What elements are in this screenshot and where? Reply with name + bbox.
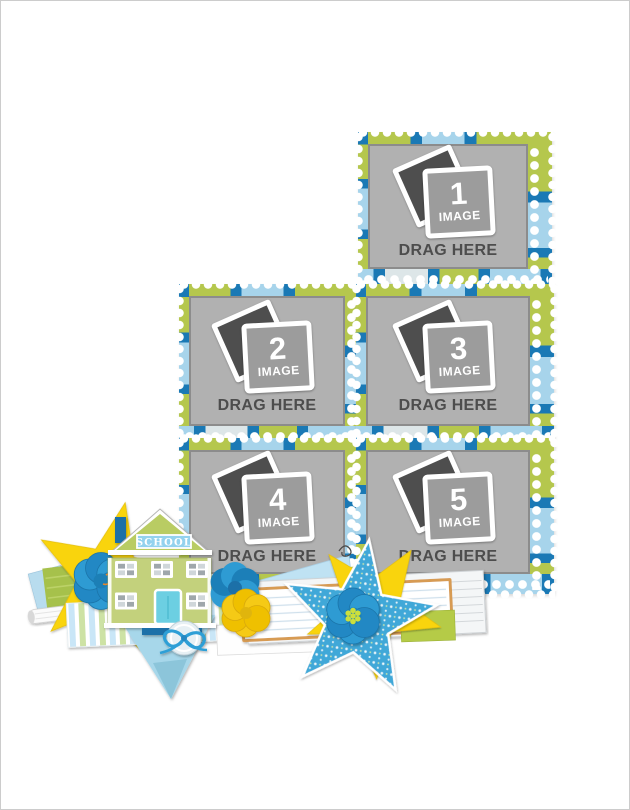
window-icon bbox=[186, 561, 208, 578]
photo-stack-icon: 1 IMAGE bbox=[400, 153, 496, 237]
image-label: IMAGE bbox=[438, 208, 481, 224]
photo-front-icon: 3 IMAGE bbox=[422, 320, 496, 394]
scallop-edge-right bbox=[548, 131, 557, 290]
scrapbook-page: 1 IMAGE DRAG HERE 2 IMAGE bbox=[0, 0, 630, 810]
decorative-cluster: SCHOOL bbox=[9, 495, 489, 710]
scallop-edge-right bbox=[550, 437, 559, 595]
flower-icon bbox=[222, 589, 270, 637]
photo-stack-icon: 2 IMAGE bbox=[219, 308, 315, 392]
window-icon bbox=[186, 593, 208, 610]
window-icon bbox=[151, 561, 173, 578]
school-sign-label: SCHOOL bbox=[136, 538, 192, 549]
scallop-edge-left bbox=[352, 283, 361, 447]
drag-here-label: DRAG HERE bbox=[399, 242, 498, 260]
scallop-edge-left bbox=[175, 283, 184, 447]
photo-drop-zone-2[interactable]: 2 IMAGE DRAG HERE bbox=[189, 296, 345, 426]
drag-here-label: DRAG HERE bbox=[218, 397, 317, 415]
photo-drop-zone-1[interactable]: 1 IMAGE DRAG HERE bbox=[368, 144, 528, 269]
window-icon bbox=[115, 593, 137, 610]
image-label: IMAGE bbox=[257, 362, 300, 378]
scallop-edge-top bbox=[355, 280, 555, 289]
slot-number: 3 bbox=[449, 335, 468, 362]
scallop-edge-top bbox=[355, 434, 555, 443]
photo-front-icon: 2 IMAGE bbox=[241, 320, 315, 394]
photo-frame-3: 3 IMAGE DRAG HERE bbox=[356, 284, 554, 446]
photo-frame-1: 1 IMAGE DRAG HERE bbox=[358, 132, 552, 289]
wire-curl bbox=[339, 546, 351, 556]
photo-stack-icon: 3 IMAGE bbox=[400, 308, 496, 392]
slot-number: 1 bbox=[449, 181, 468, 208]
scallop-edge-top bbox=[357, 128, 553, 137]
chimney bbox=[115, 517, 126, 543]
perforation-dots-right bbox=[531, 298, 542, 442]
scallop-edge-left bbox=[354, 131, 363, 290]
image-label: IMAGE bbox=[438, 362, 481, 378]
perforation-dots-right bbox=[529, 146, 540, 285]
perforation-dots-right bbox=[531, 452, 542, 590]
slot-number: 2 bbox=[268, 335, 287, 362]
drag-here-label: DRAG HERE bbox=[399, 397, 498, 415]
window-icon bbox=[115, 561, 137, 578]
photo-frame-2: 2 IMAGE DRAG HERE bbox=[179, 284, 369, 446]
scallop-edge-right bbox=[550, 283, 559, 447]
school-house-icon: SCHOOL bbox=[104, 509, 216, 635]
scallop-edge-top bbox=[178, 280, 370, 289]
photo-front-icon: 1 IMAGE bbox=[422, 165, 496, 239]
flower-icon bbox=[327, 588, 380, 644]
photo-drop-zone-3[interactable]: 3 IMAGE DRAG HERE bbox=[366, 296, 530, 426]
scallop-edge-top bbox=[178, 434, 370, 443]
